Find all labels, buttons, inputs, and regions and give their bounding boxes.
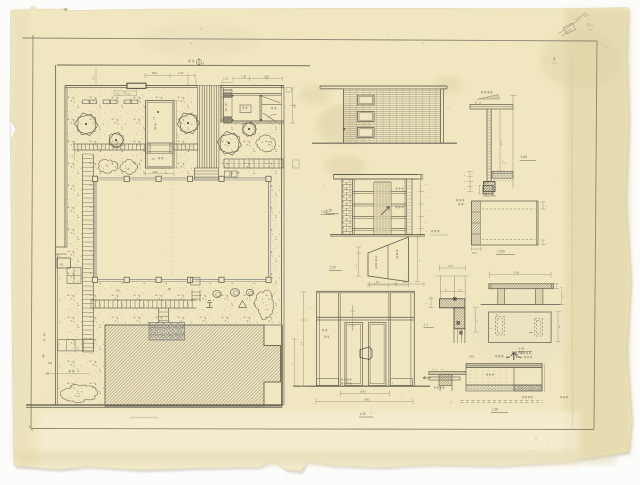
svg-text:1:10: 1:10 bbox=[330, 266, 336, 270]
svg-text:1:20: 1:20 bbox=[492, 408, 498, 412]
svg-text:7.4: 7.4 bbox=[176, 134, 180, 138]
svg-text:1:30: 1:30 bbox=[326, 209, 332, 213]
svg-text:1:3: 1:3 bbox=[424, 323, 429, 327]
svg-text:2.00: 2.00 bbox=[264, 76, 269, 79]
svg-text:1:30: 1:30 bbox=[360, 412, 366, 416]
svg-text:1:100: 1:100 bbox=[497, 250, 505, 254]
svg-text:645: 645 bbox=[48, 362, 53, 365]
svg-text:5.4: 5.4 bbox=[93, 76, 96, 80]
svg-text:1.50: 1.50 bbox=[178, 71, 184, 75]
svg-text:1640: 1640 bbox=[360, 391, 366, 394]
svg-text:8.4: 8.4 bbox=[293, 104, 297, 108]
svg-text:3.5M: 3.5M bbox=[152, 171, 158, 174]
svg-text:13.0: 13.0 bbox=[448, 265, 453, 268]
svg-text:900: 900 bbox=[152, 71, 157, 75]
svg-text:3540: 3540 bbox=[364, 399, 370, 402]
svg-text:2.4: 2.4 bbox=[499, 141, 503, 145]
svg-text:N3: N3 bbox=[60, 263, 64, 267]
svg-text:1.20: 1.20 bbox=[223, 78, 228, 81]
svg-text:14.0: 14.0 bbox=[472, 252, 477, 255]
svg-text:4.5: 4.5 bbox=[116, 289, 120, 293]
svg-text:1.36: 1.36 bbox=[241, 76, 246, 79]
svg-text:1:40: 1:40 bbox=[521, 155, 528, 159]
svg-text:1.90: 1.90 bbox=[514, 271, 520, 275]
svg-text:1:30: 1:30 bbox=[519, 347, 525, 351]
